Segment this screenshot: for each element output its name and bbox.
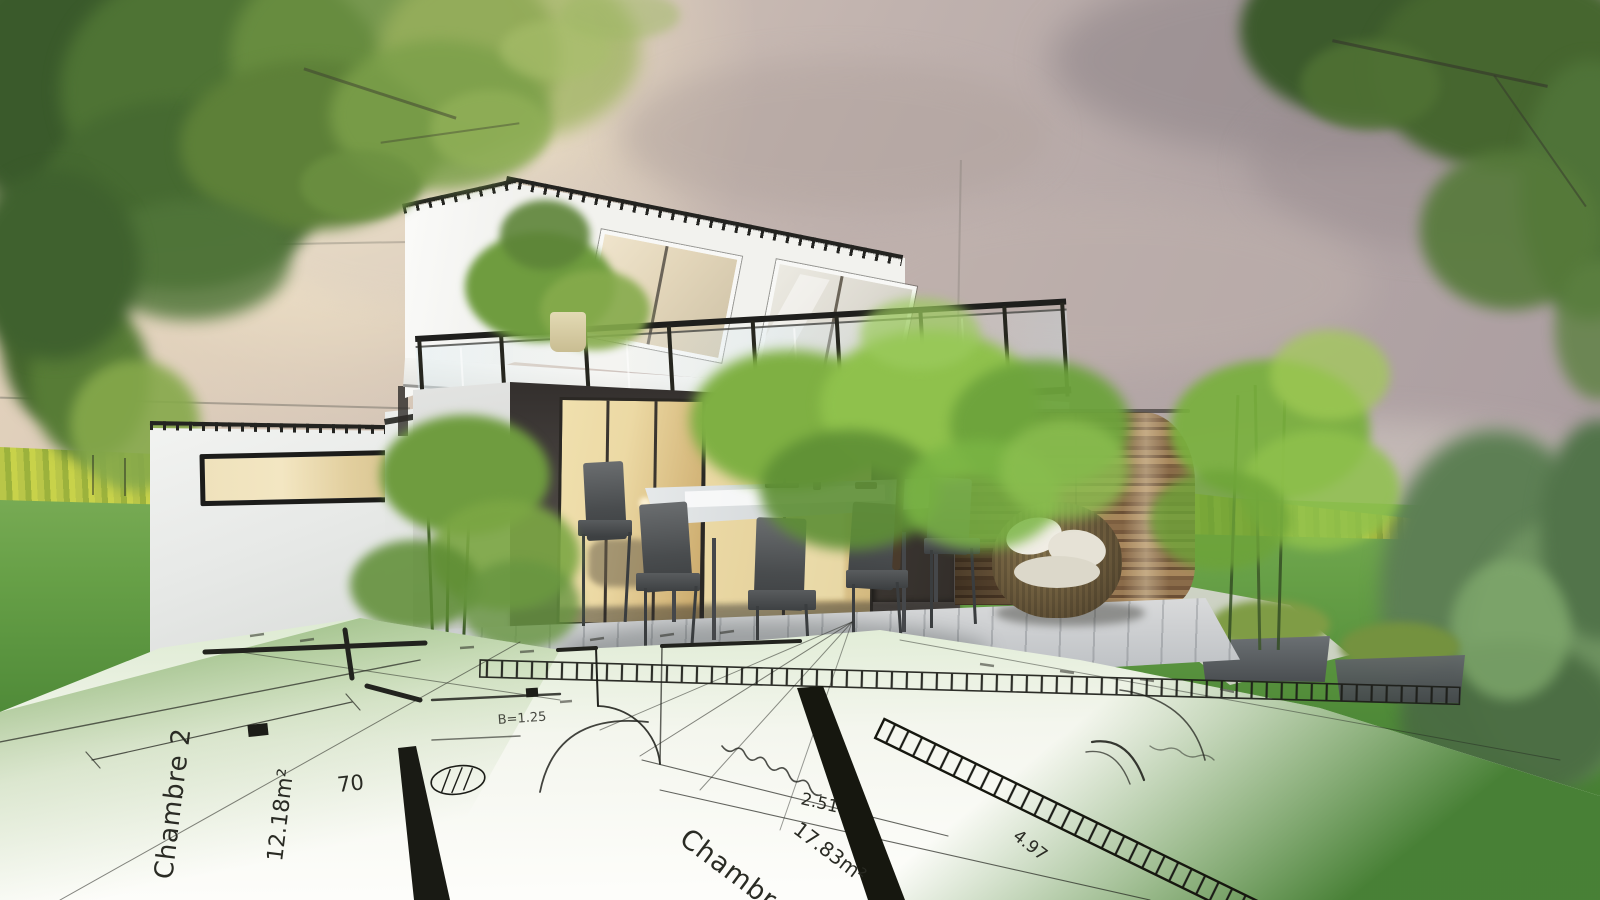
blueprint-dim-70: 70 bbox=[336, 770, 365, 797]
blueprint-overlay: Chambre 2 12.18m² 70 B=1.25 2.51 Chambre… bbox=[0, 0, 1600, 900]
wall-junction bbox=[526, 688, 539, 698]
wall-junction bbox=[247, 723, 268, 737]
architectural-render-scene: Chambre 2 12.18m² 70 B=1.25 2.51 Chambre… bbox=[0, 0, 1600, 900]
